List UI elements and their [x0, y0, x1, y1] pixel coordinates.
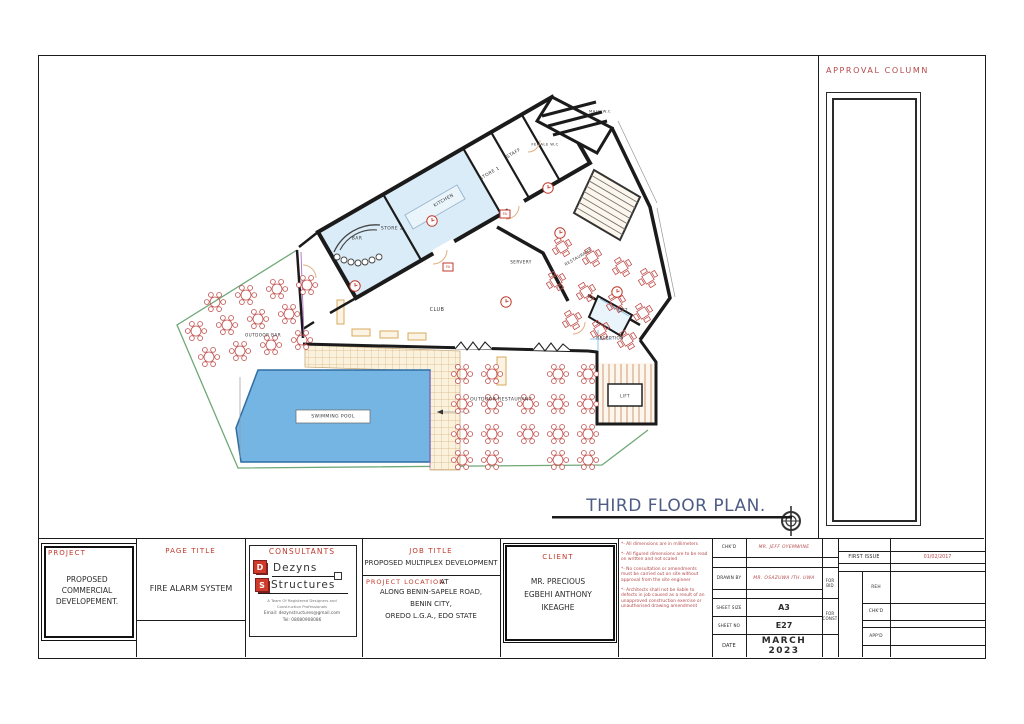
consultants-tel: Tel: 08080908086 [250, 617, 354, 624]
fire-alarm-point-label: FA [446, 265, 450, 269]
sheet-no-label: SHEET NO [712, 616, 746, 634]
location-line1: ALONG BENIN-SAPELE ROAD, [362, 587, 500, 597]
reh-label: REH [862, 571, 890, 603]
consultants-name2: Structures [271, 579, 335, 591]
page-title-value: FIRE ALARM SYSTEM [146, 570, 236, 606]
sheet-size-label: SHEET SIZE [712, 598, 746, 616]
logo-d-icon: D [253, 560, 267, 574]
chkd-value: MR. JEFF OYEMWINE [746, 538, 822, 557]
room-label-outdoor-bar: OUTDOOR BAR [245, 333, 281, 338]
for-const-cell: FOR CONST [822, 598, 838, 634]
job-title-label: JOB TITLE [362, 545, 500, 556]
room-label-reception: RECEPTION [596, 336, 623, 341]
revision-chkd-label: CHK'D [862, 603, 890, 620]
appd-label: APP'D [862, 627, 890, 645]
fire-alarm-point-label: FA [503, 212, 507, 216]
servery-walls [497, 227, 568, 301]
for-bid-cell: FOR BID [822, 567, 838, 598]
consultants-name1: Dezyns [273, 562, 317, 574]
consultants-label: CONSULTANTS [249, 546, 355, 557]
project-value: PROPOSED COMMERCIAL DEVELOPEMENT. [46, 568, 128, 612]
date-label: DATE [712, 634, 746, 657]
page-title-label: PAGE TITLE [136, 545, 245, 557]
consultants-tagline2: Construction Professionals [250, 603, 354, 609]
room-label-bar: BAR [352, 237, 363, 242]
approval-divider [818, 55, 819, 538]
room-label-male-wc: MALE W.C [589, 109, 611, 114]
client-label: CLIENT [505, 551, 611, 562]
room-label-lift-upper: LIFT [618, 308, 628, 313]
drawn-by-value: MR. OSAZUWA ITH. UWA [746, 567, 822, 589]
location-line3: OREDO L.G.A., EDO STATE [362, 611, 500, 621]
room-label-club: CLUB [430, 307, 445, 313]
location-line2: BENIN CITY, [362, 599, 500, 609]
plan-title: THIRD FLOOR PLAN. [556, 496, 796, 516]
room-label-store2: STORE 2 [381, 227, 403, 232]
notes-column: *- All dimensions are in millimeters *- … [621, 542, 709, 614]
note-line: *- No consultation or amendments must be… [621, 567, 709, 584]
approval-box-inner [832, 98, 917, 522]
logo-s-icon: S [255, 578, 269, 592]
note-line: *- All dimensions are in millimeters [621, 542, 709, 548]
project-location-label: PROJECT LOCATION [366, 578, 445, 586]
note-line: *- All figured dimensions are to be read… [621, 552, 709, 563]
logo-node [334, 572, 342, 580]
room-label-lift-lower: LIFT [620, 394, 630, 399]
job-title-value: PROPOSED MULTIPLEX DEVELOPMENT [362, 557, 500, 569]
client-line1: MR. PRECIOUS [507, 576, 609, 587]
plan-title-underline [552, 516, 792, 519]
approval-column-title: APPROVAL COLUMN [826, 66, 929, 75]
first-issue-label: FIRST ISSUE [838, 551, 890, 563]
consultants-email: Email: dezynstructures@gmail.com [250, 610, 354, 617]
drawing-sheet: MALE W.C FEMALE W.C STAFF STORE 1 KITCHE… [0, 0, 1024, 724]
sheet-size-value: A3 [746, 598, 822, 616]
project-location-at: AT [440, 578, 449, 586]
note-line: *- Architects shall not be liable to def… [621, 588, 709, 610]
client-line3: IKEAGHE [507, 602, 609, 613]
sheet-no-value: E27 [746, 616, 822, 634]
room-label-swimming-pool: SWIMMING POOL [311, 415, 355, 420]
chkd-label: CHK'D [712, 538, 746, 557]
project-label: PROJECT [48, 549, 86, 557]
room-label-servery: SERVERY [510, 260, 532, 265]
room-label-outdoor-restaurant: OUTDOOR RESTAURANT [470, 398, 532, 403]
drawn-by-label: DRAWN BY [712, 567, 746, 589]
date-value: MARCH 2023 [746, 634, 822, 657]
first-issue-date: 01/02/2017 [890, 551, 985, 563]
client-line2: EGBEHI ANTHONY [507, 589, 609, 600]
room-label-female-wc: FEMALE W.C [531, 142, 558, 147]
